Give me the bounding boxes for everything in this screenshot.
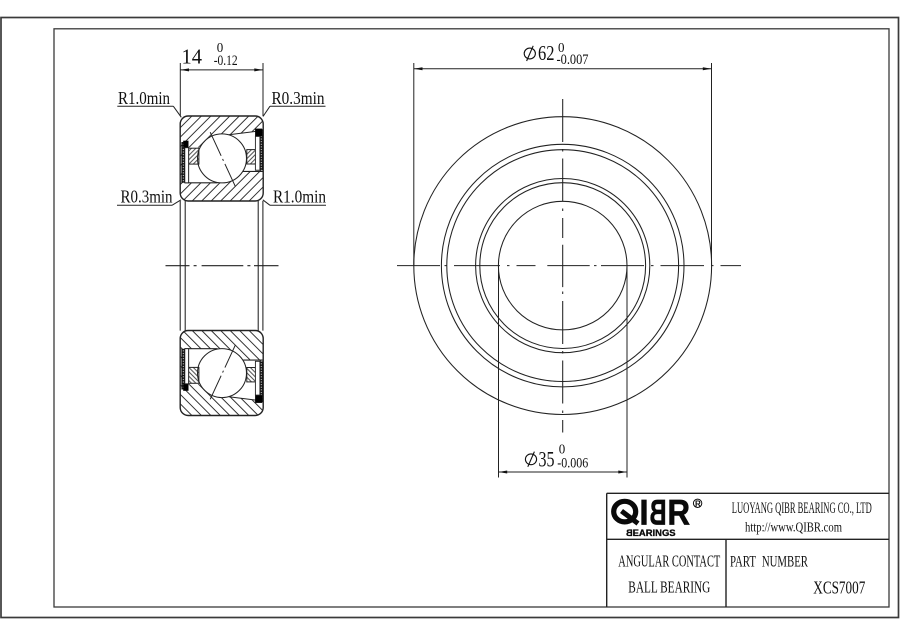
svg-text:B: B bbox=[650, 494, 667, 533]
svg-text:-0.007: -0.007 bbox=[557, 52, 589, 68]
svg-text:62: 62 bbox=[538, 41, 555, 65]
svg-text:R0.3min: R0.3min bbox=[272, 88, 325, 108]
svg-text:I: I bbox=[640, 494, 649, 533]
svg-text:XCS7007: XCS7007 bbox=[813, 577, 865, 597]
svg-text:-0.006: -0.006 bbox=[557, 456, 588, 472]
svg-text:R1.0min: R1.0min bbox=[118, 88, 170, 108]
svg-text:R: R bbox=[695, 500, 701, 509]
svg-text:-0.12: -0.12 bbox=[214, 53, 238, 69]
svg-text:BALL BEARING: BALL BEARING bbox=[628, 577, 710, 596]
svg-text:R: R bbox=[668, 494, 691, 533]
svg-text:EARINGS: EARINGS bbox=[633, 528, 676, 538]
svg-text:PART NUMBER: PART NUMBER bbox=[730, 554, 808, 571]
svg-text:R1.0min: R1.0min bbox=[273, 187, 326, 207]
svg-text:0: 0 bbox=[559, 441, 566, 456]
svg-text:14: 14 bbox=[182, 44, 203, 68]
svg-text:LUOYANG QIBR BEARING CO., LTD: LUOYANG QIBR BEARING CO., LTD bbox=[732, 500, 872, 517]
svg-text:http://www.QIBR.com: http://www.QIBR.com bbox=[745, 521, 842, 536]
svg-text:R0.3min: R0.3min bbox=[121, 187, 173, 207]
svg-text:35: 35 bbox=[539, 446, 555, 471]
svg-text:ANGULAR CONTACT: ANGULAR CONTACT bbox=[618, 552, 720, 571]
